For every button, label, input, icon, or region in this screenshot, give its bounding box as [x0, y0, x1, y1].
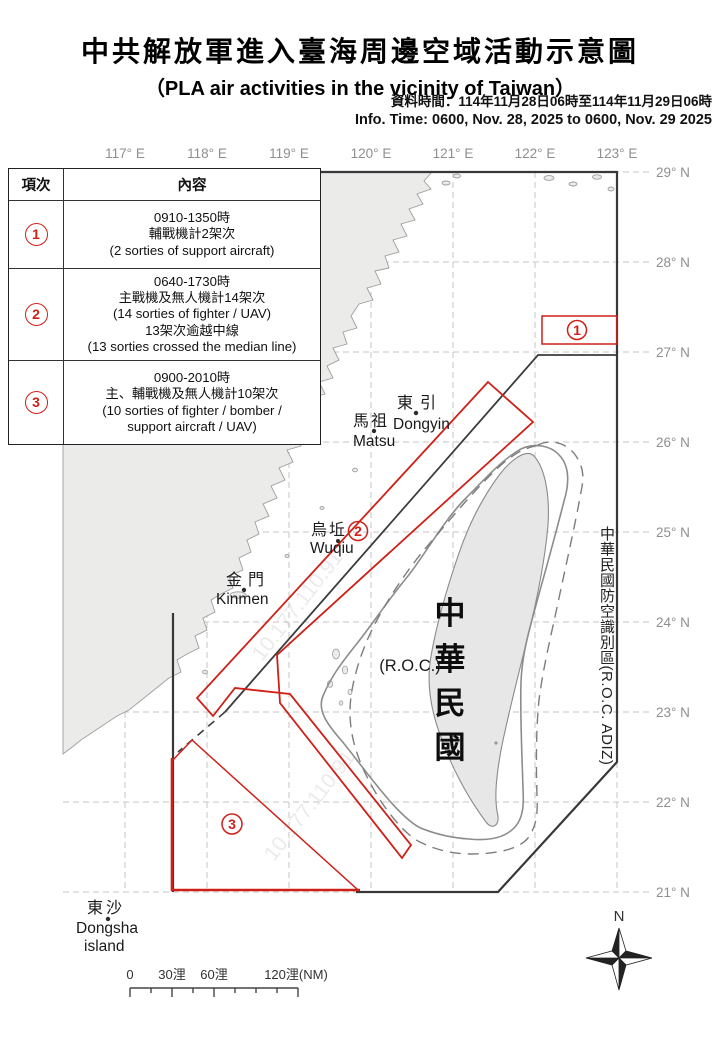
svg-text:1: 1: [573, 322, 581, 338]
svg-text:民: 民: [435, 686, 466, 721]
svg-text:東引: 東引: [397, 394, 443, 412]
page: 10.177.110.91 10.177.110.91 10.177.110.9…: [0, 0, 720, 1040]
table-row-2-id: 2: [9, 269, 64, 361]
table-header-item: 項次: [9, 169, 64, 201]
penghu-islands: [327, 649, 352, 705]
table-row-1-id: 1: [9, 201, 64, 269]
svg-text:29° N: 29° N: [656, 165, 690, 180]
svg-text:2: 2: [354, 523, 362, 539]
svg-text:金門: 金門: [226, 571, 270, 589]
place-dongyin: 東引 Dongyin: [393, 394, 450, 433]
svg-text:馬祖: 馬祖: [353, 412, 389, 430]
place-wuqiu: 烏坵 Wuqiu: [310, 521, 354, 557]
place-dot: [106, 917, 110, 921]
svg-text:25° N: 25° N: [656, 525, 690, 540]
compass-north-label: N: [614, 908, 625, 925]
svg-text:23° N: 23° N: [656, 705, 690, 720]
place-dongsha: 東沙 Dongsha island: [76, 899, 138, 955]
svg-text:22° N: 22° N: [656, 795, 690, 810]
svg-text:0: 0: [126, 967, 133, 982]
place-matsu: 馬祖 Matsu: [353, 412, 395, 450]
svg-text:122° E: 122° E: [515, 146, 556, 161]
svg-text:26° N: 26° N: [656, 435, 690, 450]
svg-text:烏坵: 烏坵: [311, 521, 347, 539]
svg-text:Wuqiu: Wuqiu: [310, 540, 354, 557]
svg-text:Dongyin: Dongyin: [393, 416, 450, 433]
page-title: 中共解放軍進入臺海周邊空域活動示意圖: [0, 30, 720, 70]
longitude-labels: 117° E 118° E 119° E 120° E 121° E 122° …: [105, 146, 637, 161]
svg-text:中: 中: [435, 596, 466, 631]
svg-text:27° N: 27° N: [656, 345, 690, 360]
svg-text:Matsu: Matsu: [353, 433, 395, 450]
svg-text:30浬: 30浬: [158, 967, 185, 982]
svg-text:國: 國: [435, 730, 466, 765]
place-dot: [414, 411, 418, 415]
adiz-vertical-label: 中華民國防空識別區(R.O.C. ADIZ): [596, 526, 617, 818]
header-block: 中共解放軍進入臺海周邊空域活動示意圖 （PLA air activities i…: [0, 0, 720, 101]
zone-3-marker: 3: [222, 814, 242, 834]
circled-number-2: 2: [25, 303, 48, 326]
sortie-table: 項次 內容 1 0910-1350時 輔戰機計2架次 (2 sorties of…: [8, 168, 321, 445]
latitude-labels: 29° N 28° N 27° N 26° N 25° N 24° N 23° …: [656, 165, 690, 900]
svg-text:123° E: 123° E: [597, 146, 638, 161]
table-row-3-content: 0900-2010時 主、輔戰機及無人機計10架次 (10 sorties of…: [64, 361, 320, 444]
svg-text:117° E: 117° E: [105, 146, 145, 161]
info-time-en: Info. Time: 0600, Nov. 28, 2025 to 0600,…: [355, 112, 712, 128]
svg-text:24° N: 24° N: [656, 615, 690, 630]
svg-text:118° E: 118° E: [187, 146, 227, 161]
table-row-3-id: 3: [9, 361, 64, 444]
svg-text:東沙: 東沙: [87, 899, 125, 917]
svg-text:120浬(NM): 120浬(NM): [264, 967, 328, 982]
scale-bar-labels: 0 30浬 60浬 120浬(NM): [126, 967, 327, 982]
svg-text:island: island: [84, 938, 125, 955]
svg-text:28° N: 28° N: [656, 255, 690, 270]
taiwan-island: [429, 454, 548, 827]
svg-text:119° E: 119° E: [269, 146, 309, 161]
table-header-content: 內容: [64, 169, 320, 201]
svg-text:121° E: 121° E: [433, 146, 474, 161]
zone-1-marker: 1: [568, 321, 587, 340]
svg-text:120° E: 120° E: [351, 146, 392, 161]
info-time-block: 資料時間：114年11月28日06時至114年11月29日06時 Info. T…: [355, 90, 712, 128]
svg-text:Kinmen: Kinmen: [216, 591, 269, 608]
circled-number-3: 3: [25, 391, 48, 414]
taiwan-strait-map: 10.177.110.91 10.177.110.91 10.177.110.9…: [0, 0, 720, 1040]
place-dot: [372, 429, 376, 433]
compass-rose: [586, 928, 652, 990]
svg-text:3: 3: [228, 816, 236, 832]
info-time-zh: 資料時間：114年11月28日06時至114年11月29日06時: [355, 90, 712, 110]
roc-label: (R.O.C.): [379, 657, 440, 675]
svg-text:Dongsha: Dongsha: [76, 920, 138, 937]
circled-number-1: 1: [25, 223, 48, 246]
svg-text:60浬: 60浬: [200, 967, 227, 982]
svg-text:21° N: 21° N: [656, 885, 690, 900]
table-row-1-content: 0910-1350時 輔戰機計2架次 (2 sorties of support…: [64, 201, 320, 269]
offshore-islet: [494, 741, 497, 744]
place-dot: [242, 588, 246, 592]
place-dot: [336, 539, 340, 543]
scale-bar: [130, 988, 298, 997]
table-row-2-content: 0640-1730時 主戰機及無人機計14架次 (14 sorties of f…: [64, 269, 320, 361]
